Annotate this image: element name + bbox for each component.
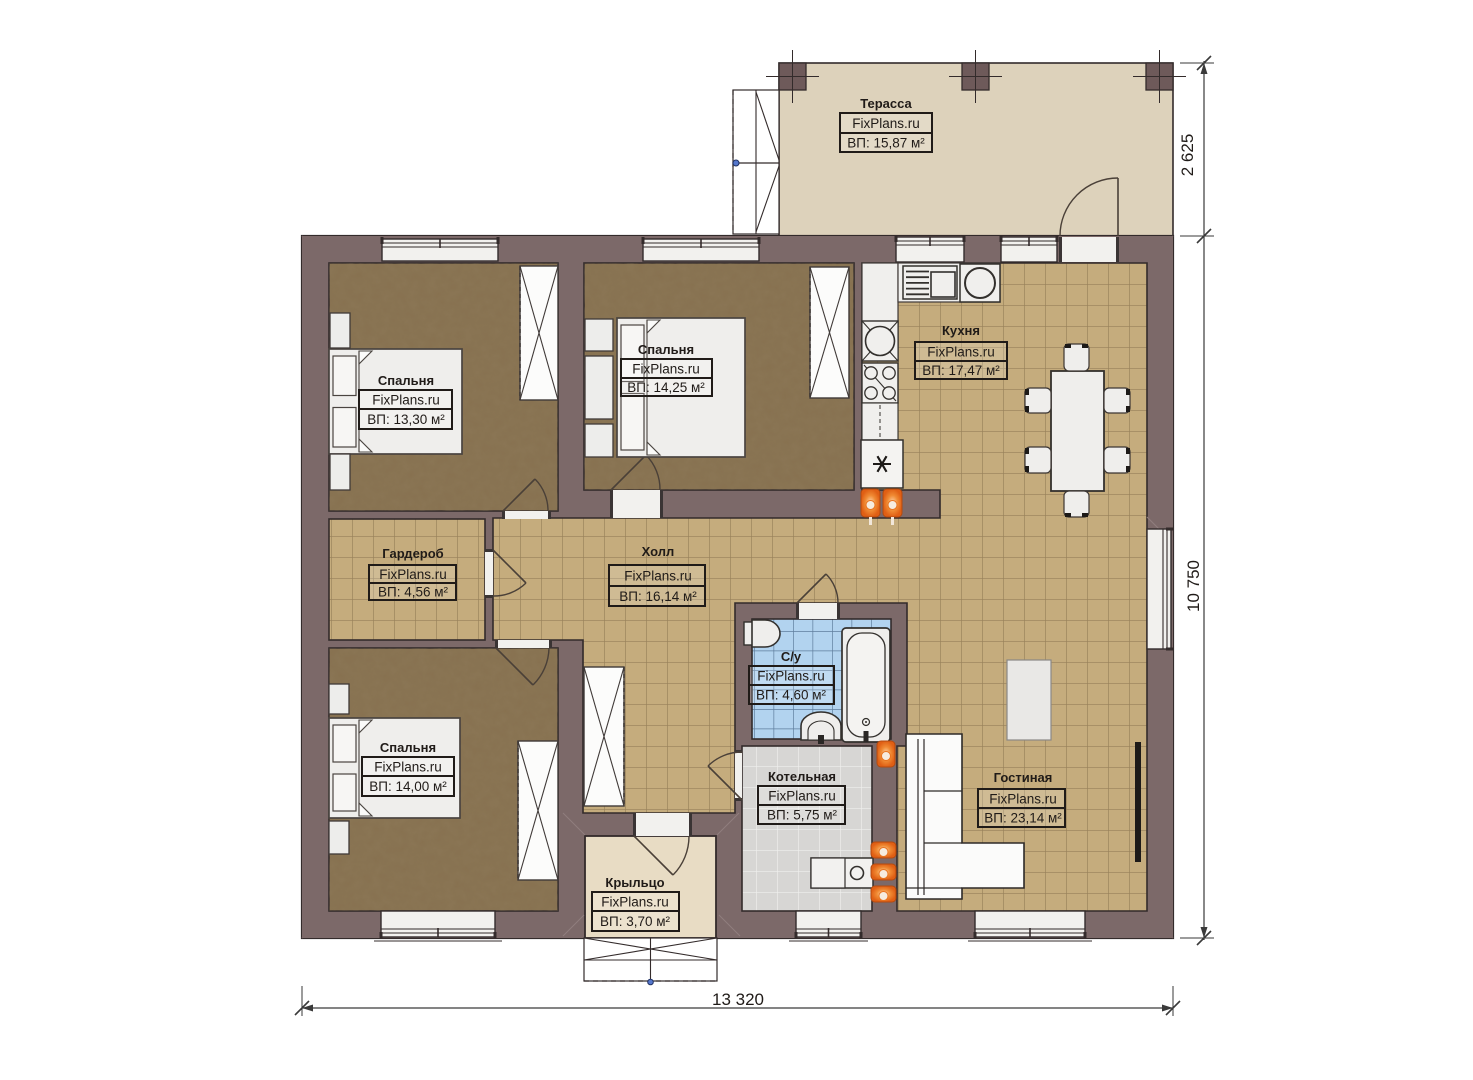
svg-text:FixPlans.ru: FixPlans.ru bbox=[927, 345, 995, 360]
svg-text:ВП: 14,25 м²: ВП: 14,25 м² bbox=[627, 380, 705, 395]
svg-text:ВП: 23,14 м²: ВП: 23,14 м² bbox=[984, 811, 1062, 826]
svg-text:FixPlans.ru: FixPlans.ru bbox=[372, 393, 440, 408]
svg-text:ВП: 3,70 м²: ВП: 3,70 м² bbox=[600, 914, 671, 929]
svg-text:ВП: 15,87 м²: ВП: 15,87 м² bbox=[847, 136, 925, 151]
svg-text:Гардероб: Гардероб bbox=[382, 546, 443, 561]
svg-text:FixPlans.ru: FixPlans.ru bbox=[989, 792, 1057, 807]
svg-text:ВП: 4,56 м²: ВП: 4,56 м² bbox=[378, 585, 449, 600]
svg-text:Спальня: Спальня bbox=[378, 373, 434, 388]
svg-text:Гостиная: Гостиная bbox=[994, 770, 1053, 785]
svg-text:FixPlans.ru: FixPlans.ru bbox=[852, 116, 920, 131]
svg-text:Терасса: Терасса bbox=[860, 96, 912, 111]
svg-text:13 320: 13 320 bbox=[712, 990, 764, 1009]
svg-text:Спальня: Спальня bbox=[380, 740, 436, 755]
svg-text:Холл: Холл bbox=[642, 544, 675, 559]
svg-text:Кухня: Кухня bbox=[942, 323, 980, 338]
svg-text:FixPlans.ru: FixPlans.ru bbox=[624, 569, 692, 584]
svg-text:10 750: 10 750 bbox=[1184, 560, 1203, 612]
svg-text:ВП: 16,14 м²: ВП: 16,14 м² bbox=[619, 589, 697, 604]
svg-text:FixPlans.ru: FixPlans.ru bbox=[768, 789, 836, 804]
svg-text:Крыльцо: Крыльцо bbox=[605, 875, 664, 890]
svg-text:ВП: 14,00 м²: ВП: 14,00 м² bbox=[369, 779, 447, 794]
svg-text:ВП: 5,75 м²: ВП: 5,75 м² bbox=[767, 808, 838, 823]
svg-text:ВП: 4,60 м²: ВП: 4,60 м² bbox=[756, 688, 827, 703]
svg-text:Спальня: Спальня bbox=[638, 342, 694, 357]
svg-text:ВП: 17,47 м²: ВП: 17,47 м² bbox=[922, 363, 1000, 378]
svg-text:FixPlans.ru: FixPlans.ru bbox=[632, 362, 700, 377]
svg-text:FixPlans.ru: FixPlans.ru bbox=[757, 669, 825, 684]
svg-text:2 625: 2 625 bbox=[1178, 134, 1197, 177]
svg-text:FixPlans.ru: FixPlans.ru bbox=[379, 567, 447, 582]
svg-text:Котельная: Котельная bbox=[768, 769, 836, 784]
svg-text:FixPlans.ru: FixPlans.ru bbox=[601, 895, 669, 910]
svg-text:С/у: С/у bbox=[781, 649, 802, 664]
svg-text:FixPlans.ru: FixPlans.ru bbox=[374, 760, 442, 775]
svg-text:ВП: 13,30 м²: ВП: 13,30 м² bbox=[367, 412, 445, 427]
